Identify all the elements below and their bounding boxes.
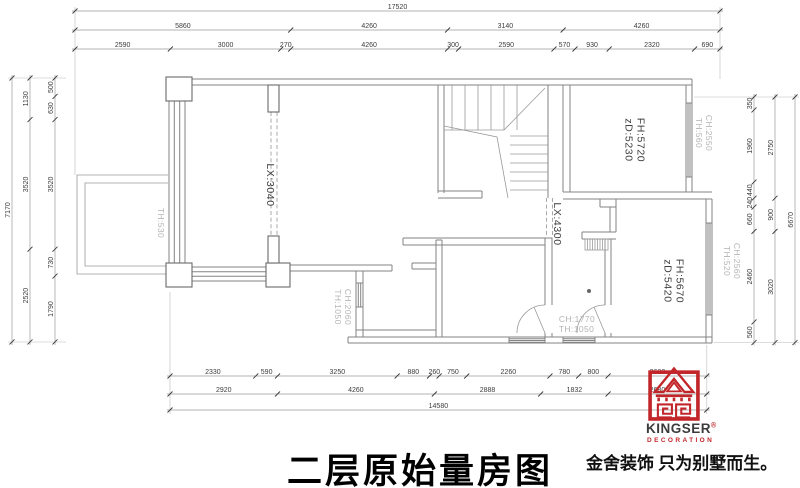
extension-lines [8, 7, 799, 414]
room-label-line: zD:5420 [661, 259, 673, 303]
dim-label: 4260 [634, 23, 650, 30]
dim-label: 930 [586, 42, 598, 49]
brand-subtitle: DECORATION [647, 437, 714, 444]
room-label-line: CH:2550 [704, 115, 714, 151]
room-label-line: TH:520 [722, 243, 732, 279]
room-label-ch2560: CH:2560 TH:520 [722, 243, 742, 279]
floor-plan-sheet: 1752058604260314042602590300027042603002… [0, 0, 800, 488]
dim-label: 3140 [498, 23, 514, 30]
dim-label: 1832 [567, 387, 583, 394]
dim-label: 900 [768, 209, 775, 221]
dim-label: 1790 [48, 301, 55, 317]
dim-label: 300 [447, 42, 459, 49]
room-label-line: TH:1050 [333, 289, 343, 325]
room-label-line: FH:5720 [634, 118, 646, 162]
dim-label: 260 [428, 369, 440, 376]
room-label-line: zD:5230 [622, 118, 634, 162]
dim-label: 1130 [23, 91, 30, 106]
dim-label: 750 [447, 369, 459, 376]
dim-label: 2590 [498, 42, 514, 49]
brand-name-text: KINGSER [646, 421, 711, 436]
dim-label: 4260 [361, 23, 377, 30]
dimension-chains: 1752058604260314042602590300027042603002… [5, 4, 798, 413]
floor-drain-dot [587, 289, 591, 293]
room-label-lx3040: LX:3040 [264, 163, 276, 206]
dim-label: 3520 [48, 177, 55, 193]
dim-label: 270 [280, 42, 292, 49]
dim-label: 14580 [429, 403, 449, 410]
dim-label: 4260 [348, 387, 364, 394]
room-label-line: FH:5670 [673, 259, 685, 303]
brand-name: KINGSER® [646, 421, 717, 436]
dim-label: 3520 [23, 177, 30, 193]
dim-label: 2520 [23, 288, 30, 304]
dim-label: 2750 [768, 140, 775, 156]
dim-label: 560 [747, 326, 754, 338]
dim-label: 3020 [768, 279, 775, 295]
drawing-title: 二层原始量房图 [287, 443, 553, 488]
dashed-openings [271, 112, 553, 238]
room-label-lx4300: LX:4300 [551, 202, 563, 245]
staircase [444, 85, 548, 198]
room-label-line: TH:1050 [559, 324, 595, 334]
room-label-ch1770: CH:1770 TH:1050 [559, 314, 595, 334]
dim-label: 630 [48, 102, 55, 114]
room-label-fh5720: FH:5720 zD:5230 [622, 118, 647, 162]
room-label-line: CH:2560 [732, 243, 742, 279]
room-label-line: TH:560 [694, 115, 704, 151]
dim-label: 240 [747, 197, 754, 209]
dim-label: 5860 [175, 23, 191, 30]
dim-label: 4260 [361, 42, 377, 49]
room-label-line: TH:530 [156, 208, 166, 238]
dim-label: 2590 [115, 42, 131, 49]
dim-label: 350 [747, 98, 754, 110]
dim-label: 2320 [644, 42, 660, 49]
kingser-logo-icon [648, 366, 700, 422]
dim-label: 3000 [218, 42, 234, 49]
balcony [77, 175, 168, 274]
room-label-th530: TH:530 [156, 208, 166, 238]
dim-label: 2888 [480, 387, 496, 394]
dim-label: 7170 [5, 202, 12, 218]
dim-label: 800 [588, 369, 600, 376]
brand-tagline: 金舍装饰 只为别墅而生。 [586, 449, 777, 474]
dim-label: 3250 [330, 369, 346, 376]
dim-label: 780 [558, 369, 570, 376]
dim-label: 500 [48, 81, 55, 93]
dim-label: 880 [408, 369, 420, 376]
room-label-line: CH:1770 [559, 314, 595, 324]
dim-label: 660 [747, 213, 754, 225]
room-label-line: LX:3040 [264, 163, 276, 206]
dim-label: 2260 [501, 369, 517, 376]
dim-label: 6670 [788, 212, 795, 228]
dim-label: 440 [747, 184, 754, 196]
dim-label: 2330 [205, 369, 221, 376]
dim-label: 730 [48, 257, 55, 269]
dim-label: 2920 [216, 387, 232, 394]
room-label-ch2550: CH:2550 TH:560 [694, 115, 714, 151]
dim-label: 2460 [747, 269, 754, 285]
dim-label: 17520 [388, 4, 408, 11]
room-label-fh5670: FH:5670 zD:5420 [661, 259, 686, 303]
room-label-line: LX:4300 [551, 202, 563, 245]
dim-label: 690 [701, 42, 713, 49]
dim-label: 590 [261, 369, 273, 376]
dim-label: 570 [559, 42, 571, 49]
room-label-ch2060: CH:2060 TH:1050 [333, 289, 353, 325]
registered-mark: ® [711, 423, 717, 430]
dim-label: 1960 [747, 138, 754, 154]
room-label-line: CH:2060 [343, 289, 353, 325]
